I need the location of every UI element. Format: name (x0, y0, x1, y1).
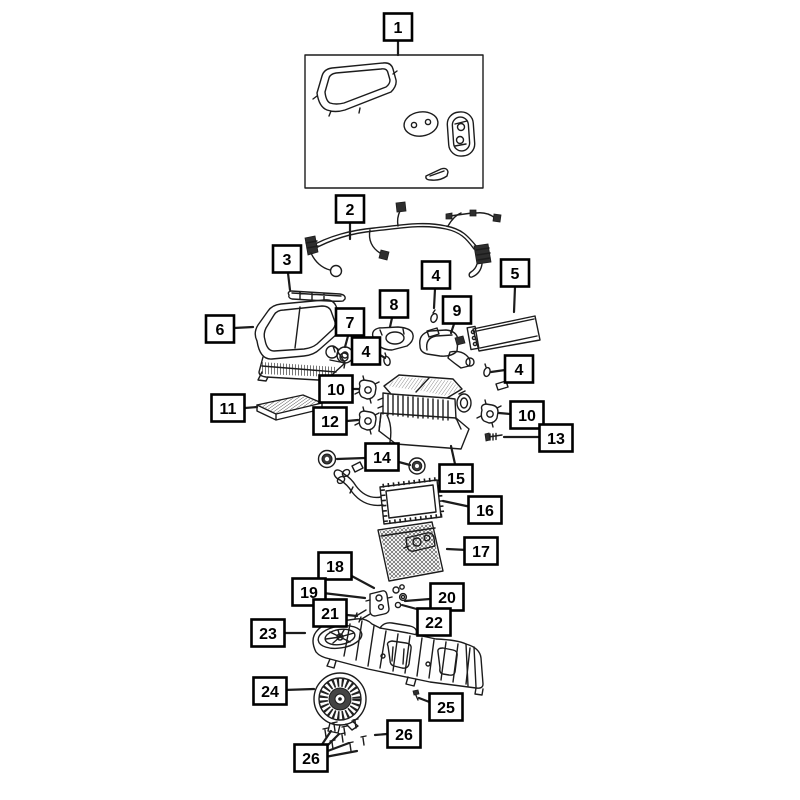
callout-7-leader (345, 336, 348, 347)
callout-25[interactable]: 25 (430, 694, 463, 721)
callout-26-right[interactable]: 26 (388, 721, 421, 748)
callout-13-label: 13 (547, 431, 565, 448)
callout-15[interactable]: 15 (440, 465, 473, 492)
callout-11-leader (245, 407, 257, 408)
callout-24[interactable]: 24 (254, 678, 287, 705)
callout-19-leader (323, 593, 365, 598)
callout-26-right-leader (375, 734, 387, 735)
callout-4-mid-label: 4 (362, 344, 371, 361)
callout-3[interactable]: 3 (273, 246, 301, 273)
callout-10-left-label: 10 (327, 382, 345, 399)
callout-4-right[interactable]: 4 (505, 356, 533, 383)
callout-14-leader (337, 458, 365, 459)
callout-25-label: 25 (437, 700, 455, 717)
callout-18[interactable]: 18 (319, 553, 352, 580)
callout-5-leader (514, 287, 515, 312)
callout-26-left-leader (325, 751, 357, 757)
callout-23-label: 23 (259, 626, 277, 643)
callout-26-left[interactable]: 26 (295, 745, 328, 772)
callout-5[interactable]: 5 (501, 260, 529, 287)
callout-20[interactable]: 20 (431, 584, 464, 611)
part-retainer-4-mid (383, 353, 391, 366)
callout-5-label: 5 (511, 266, 520, 283)
part-grommet-14-left (319, 451, 336, 468)
part-actuator-10-right (477, 400, 501, 427)
part-blower-motor (314, 673, 366, 733)
callout-22-label: 22 (425, 615, 443, 632)
callout-2[interactable]: 2 (336, 196, 364, 223)
callout-9[interactable]: 9 (443, 297, 471, 324)
part-evaporator (378, 522, 443, 581)
callout-1-label: 1 (394, 20, 403, 37)
callout-14[interactable]: 14 (366, 444, 399, 471)
callout-21[interactable]: 21 (314, 600, 347, 627)
parts-diagram: 1234567894101112410131415161718192021222… (0, 0, 800, 800)
part-center-case (378, 375, 471, 449)
part-orings (393, 585, 406, 608)
callout-23[interactable]: 23 (252, 620, 285, 647)
callout-6-leader (234, 327, 253, 328)
callout-17[interactable]: 17 (465, 538, 498, 565)
callout-10-left[interactable]: 10 (320, 376, 353, 403)
part-expansion-valve (366, 591, 392, 616)
callout-14-label: 14 (373, 450, 391, 467)
part-seal-strip (288, 291, 345, 301)
callout-4-right-leader (491, 370, 505, 372)
callout-9-label: 9 (453, 303, 462, 320)
callout-15-label: 15 (447, 471, 465, 488)
callout-12-label: 12 (321, 414, 339, 431)
part-retainer-4-top (427, 310, 439, 337)
callout-16[interactable]: 16 (469, 497, 502, 524)
part-screw-13 (485, 433, 502, 441)
part-grommet-14-right (409, 458, 425, 474)
callout-11[interactable]: 11 (212, 395, 245, 422)
callout-12[interactable]: 12 (314, 408, 347, 435)
callout-10-right-label: 10 (518, 408, 536, 425)
callout-4-mid[interactable]: 4 (352, 338, 380, 365)
callout-20-leader (405, 599, 430, 601)
callout-21-leader (347, 615, 357, 616)
callout-26-right-label: 26 (395, 727, 413, 744)
part-wiring-harness (305, 202, 501, 277)
callout-2-label: 2 (346, 202, 355, 219)
part-evaporator-plate (467, 316, 540, 351)
callout-3-leader (288, 273, 290, 290)
callout-4-top[interactable]: 4 (422, 262, 450, 289)
callout-26-left-label: 26 (302, 751, 320, 768)
callout-17-label: 17 (472, 544, 490, 561)
callout-21-label: 21 (321, 606, 339, 623)
callout-10-right-leader (499, 413, 510, 414)
callout-1[interactable]: 1 (384, 14, 412, 41)
diagram-artwork: 1234567894101112410131415161718192021222… (0, 0, 800, 800)
callout-6-label: 6 (216, 322, 225, 339)
part-seal-kit (305, 55, 483, 188)
callout-3-label: 3 (283, 252, 292, 269)
callout-4-top-leader (434, 289, 435, 308)
callout-8[interactable]: 8 (380, 291, 408, 318)
callout-16-leader (443, 501, 471, 507)
callout-8-label: 8 (390, 297, 399, 314)
callout-13[interactable]: 13 (540, 425, 573, 452)
callout-7[interactable]: 7 (336, 309, 364, 336)
callout-18-label: 18 (326, 559, 344, 576)
callout-7-label: 7 (346, 315, 355, 332)
callout-11-label: 11 (220, 401, 237, 418)
part-upper-housing (255, 300, 348, 381)
callout-20-label: 20 (438, 590, 456, 607)
callout-24-label: 24 (261, 684, 279, 701)
callout-16-label: 16 (476, 503, 494, 520)
callout-12-leader (347, 420, 358, 421)
callout-4-top-label: 4 (432, 268, 441, 285)
callout-4-right-label: 4 (515, 362, 524, 379)
callout-6[interactable]: 6 (206, 316, 234, 343)
callout-24-leader (284, 689, 314, 690)
callout-22[interactable]: 22 (418, 609, 451, 636)
callout-8-leader (390, 318, 392, 327)
